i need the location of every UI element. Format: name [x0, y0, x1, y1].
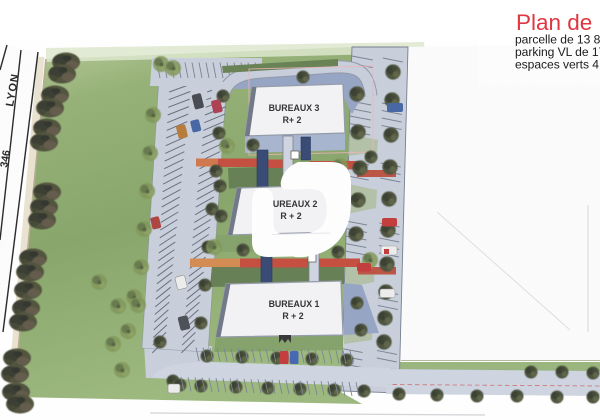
svg-text:espaces verts 4 100 m²: espaces verts 4 100 m²	[515, 58, 600, 72]
svg-text:Plan de masse: Plan de masse	[516, 10, 600, 35]
